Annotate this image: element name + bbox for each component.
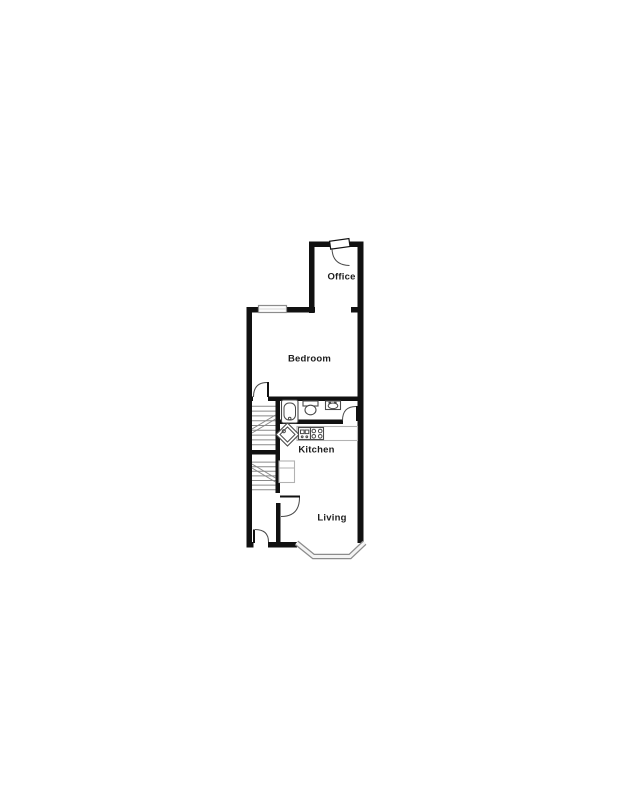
- bedroom-window-icon: [259, 306, 287, 313]
- floor-plan-drawing: [0, 0, 618, 800]
- bay-window-icon: [297, 543, 365, 557]
- front-door: [254, 530, 269, 544]
- room-label-office: Office: [327, 271, 355, 282]
- refrigerator-icon: [279, 461, 295, 483]
- toilet-icon: [303, 401, 318, 415]
- floor-plan: Office Bedroom Kitchen Living: [0, 0, 618, 800]
- room-label-living: Living: [317, 512, 346, 523]
- room-label-bedroom: Bedroom: [288, 354, 331, 365]
- bathroom-door: [343, 406, 358, 421]
- bedroom-door: [254, 382, 269, 397]
- interior-walls: [247, 397, 358, 548]
- living-room-door: [280, 497, 300, 517]
- wash-basin-icon: [326, 401, 341, 410]
- bathtub-icon: [282, 400, 299, 423]
- exterior-walls: [247, 242, 364, 548]
- staircase-lower: [252, 462, 276, 490]
- hob-icon: [311, 428, 324, 440]
- staircase-upper: [252, 406, 276, 444]
- room-label-kitchen: Kitchen: [298, 444, 334, 455]
- office-door: [330, 239, 350, 266]
- kitchen-sink-icon: [299, 428, 311, 440]
